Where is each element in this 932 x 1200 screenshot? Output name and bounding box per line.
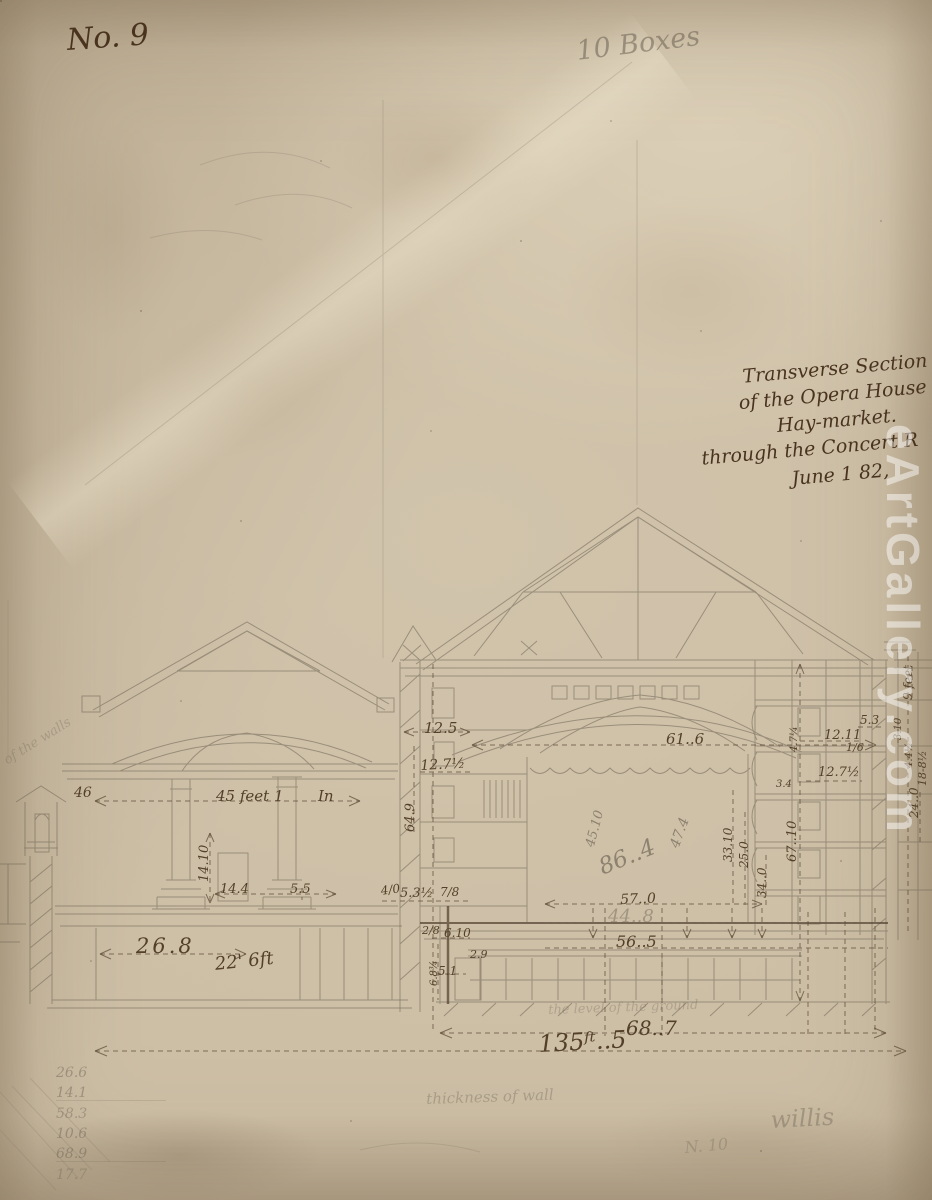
dim-34-0: 34..0 (756, 867, 768, 898)
dim-68-7: 68..7 (626, 1018, 677, 1038)
dim-6-8: 6.8¾ (430, 960, 440, 986)
dim-64-9: 64.9 (404, 803, 417, 832)
dim-3-4: 3.4 (776, 780, 792, 790)
faint-marks (0, 62, 637, 1190)
title-block: Transverse Section of the Opera House Ha… (694, 351, 932, 511)
dim-135-5: 135ᶠᵗ..5 (538, 1027, 627, 1056)
dim-67-10: 67..10 (786, 821, 799, 862)
dim-5-3: 5.3 (860, 714, 879, 726)
dim-14-10: 14.10 (198, 845, 211, 882)
dim-26-8: 26.8 (136, 936, 195, 957)
dim-5-1: 5.1 (438, 965, 457, 977)
dim-4-4: 4.4½ (905, 742, 915, 768)
calc-line: 10.6 (56, 1127, 166, 1141)
sheet-number: No. 9 (66, 20, 150, 56)
calc-column: 26.6 14.1 58.3 10.6 68.9 17.7 (56, 1066, 166, 1188)
dim-4-0: 4/0 (380, 882, 401, 897)
dim-45-feet: 45 feet 1 (216, 789, 284, 804)
dim-56-5: 56..5 (616, 934, 657, 950)
calc-line: 17.7 (56, 1168, 166, 1182)
dim-44-8: 44..8 (608, 908, 654, 926)
thickness-note: thickness of wall (426, 1088, 554, 1107)
signature: willis (770, 1105, 835, 1132)
dim-12-7-a: 12.7½ (420, 757, 465, 773)
dim-61-6: 61..6 (666, 732, 704, 747)
dim-5-5: 5.5 (290, 883, 311, 896)
dim-2-9: 2.9 (470, 949, 488, 960)
calc-line: 26.6 (56, 1066, 166, 1080)
dim-wall-ref: 46 (74, 786, 92, 800)
dim-25-0: 25.0 (738, 841, 750, 868)
dim-45-feet-in: In (318, 789, 334, 804)
dim-24-0: 24..0 (908, 787, 920, 818)
calc-line: 14.1 (56, 1086, 166, 1101)
left-section (0, 622, 412, 1008)
dim-4-7: 4.7¼ (790, 726, 800, 752)
dim-33-10: 33.10 (722, 828, 734, 862)
dim-12-5: 12.5 (424, 721, 457, 736)
calc-line: 58.3 (56, 1107, 166, 1121)
dim-6-10: 6.10 (444, 927, 471, 939)
dim-18-8: 18-8½ (917, 751, 928, 786)
dim-2-8: 2/8 (422, 925, 440, 936)
dim-7-8: 7/8 (440, 886, 459, 898)
dim-57-0: 57..0 (620, 892, 656, 907)
secondary-number: N. 10 (684, 1136, 729, 1156)
dim-12-7-b: 12.7½ (818, 766, 860, 779)
drawing-sheet: No. 9 10 Boxes Transverse Section of the… (0, 0, 932, 1200)
title-line-5: June 1 82, (791, 461, 890, 488)
dim-9-feet: 9 feet (902, 665, 914, 700)
dark-lines (420, 906, 888, 1004)
dim-5-3-half: 5.3½ (400, 887, 433, 900)
dim-1-6: 1/6 (846, 742, 864, 753)
dim-3-10: 3.10 (894, 718, 904, 740)
drawing-linework (0, 0, 932, 1200)
calc-line: 68.9 (56, 1147, 166, 1162)
dim-14-4: 14.4 (220, 883, 249, 896)
